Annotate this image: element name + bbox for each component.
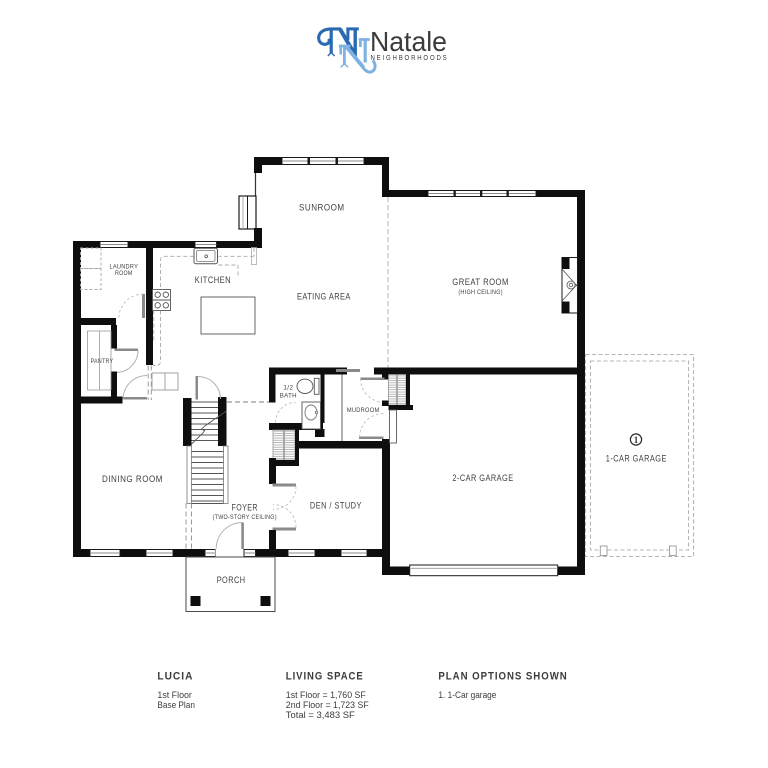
svg-text:SUNROOM: SUNROOM [299, 202, 345, 213]
svg-text:PORCH: PORCH [217, 575, 246, 586]
svg-text:LUCIA: LUCIA [157, 670, 193, 682]
svg-text:ROOM: ROOM [115, 270, 133, 277]
svg-text:DINING ROOM: DINING ROOM [102, 474, 163, 485]
svg-text:2-CAR GARAGE: 2-CAR GARAGE [452, 473, 513, 484]
svg-text:DEN / STUDY: DEN / STUDY [310, 501, 362, 512]
svg-text:(TWO-STORY CEILING): (TWO-STORY CEILING) [213, 514, 277, 521]
svg-text:GREAT ROOM: GREAT ROOM [452, 277, 509, 288]
svg-text:1-CAR GARAGE: 1-CAR GARAGE [606, 453, 667, 464]
svg-text:1/2: 1/2 [283, 385, 293, 392]
svg-text:Natale: Natale [370, 26, 447, 57]
svg-text:1: 1 [634, 436, 639, 446]
svg-text:Total = 3,483 SF: Total = 3,483 SF [286, 710, 355, 721]
svg-text:KITCHEN: KITCHEN [195, 275, 231, 286]
svg-text:Base Plan: Base Plan [157, 700, 195, 711]
svg-text:NEIGHBORHOODS: NEIGHBORHOODS [371, 55, 449, 62]
svg-text:LIVING SPACE: LIVING SPACE [286, 670, 364, 682]
svg-text:MUDROOM: MUDROOM [347, 407, 380, 414]
svg-text:1. 1-Car garage: 1. 1-Car garage [438, 690, 496, 701]
svg-text:PANTRY: PANTRY [91, 358, 114, 365]
svg-text:(HIGH CEILING): (HIGH CEILING) [458, 289, 503, 296]
svg-text:PLAN OPTIONS SHOWN: PLAN OPTIONS SHOWN [438, 670, 567, 682]
svg-text:FOYER: FOYER [231, 502, 258, 513]
svg-text:BATH: BATH [280, 392, 297, 399]
svg-text:EATING AREA: EATING AREA [297, 292, 351, 303]
